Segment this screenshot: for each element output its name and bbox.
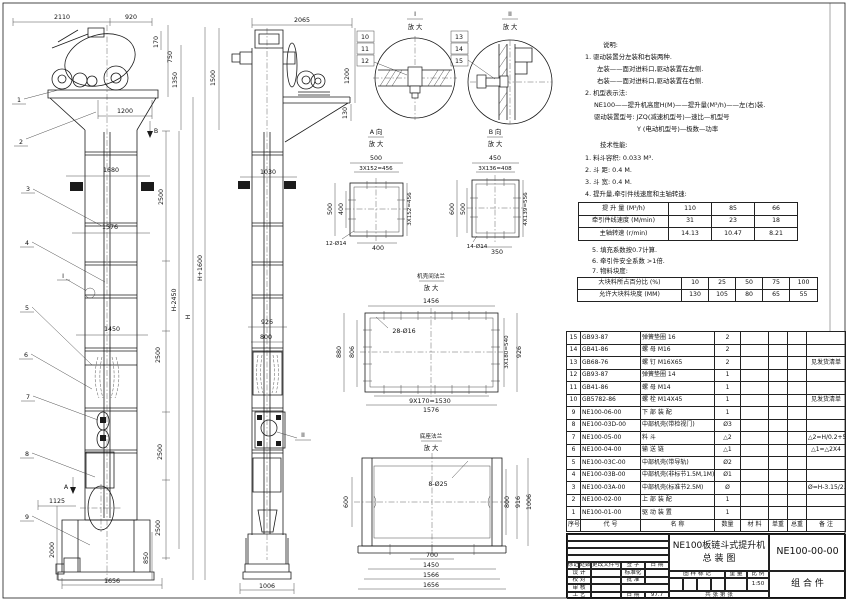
part-leader: 11: [361, 46, 369, 53]
bom-code: NE100-03B-00: [581, 469, 641, 482]
detail-title: A 向: [370, 127, 383, 136]
part-leader: 14: [455, 46, 463, 53]
bom-row: 3NE100-03A-00中部机壳(标准节2.5M)ØØ=H-3.15/2.5: [567, 482, 846, 495]
bom-code: NE100-06-00: [581, 407, 641, 420]
bom-cell: [741, 369, 769, 382]
note-line: NE100——提升机高度H(M)——提升量(M³/h)——左(右)装.: [594, 102, 765, 108]
revision-row: [567, 555, 669, 562]
note-line: 左装——面对进料口,驱动装置在左侧.: [597, 66, 703, 72]
bom-header: 备 注: [807, 519, 846, 532]
bom-row: 2NE100-02-00上 部 装 配1: [567, 494, 846, 507]
bom-cell: [769, 332, 788, 345]
dim-label: 1500: [210, 70, 217, 86]
rev-header-sign: 签 字: [621, 562, 645, 569]
capacity-spec-table: 提 升 量 (M³/h) 110 85 66 牵引件线速度 (M/min) 31…: [578, 202, 798, 241]
bom-code: GB41-86: [581, 382, 641, 395]
bom-remark: [807, 332, 846, 345]
detail-casing-flange: 机壳间法兰 放 大 1456 28-Ø16 880 806 3X180=540 …: [336, 272, 523, 414]
bom-qty: Ø: [715, 482, 741, 495]
dim-label: 1200: [117, 108, 133, 115]
dim-label: 170: [153, 36, 160, 48]
bom-cell: [788, 469, 807, 482]
detail-callout-label: I: [62, 273, 64, 280]
spec-label: 提 升 量 (M³/h): [579, 203, 669, 216]
drawing-sheet: 2110 920 170 750 1350 1500 1200 B 1680 2…: [0, 0, 850, 609]
tech-title: 技术性能:: [600, 142, 628, 148]
part-leader: 13: [455, 34, 463, 41]
part-leader: 7: [26, 394, 30, 401]
part-leader: 15: [455, 58, 463, 65]
bom-cell: [741, 357, 769, 370]
dim-label: 3X152=456: [359, 166, 393, 172]
lump-value: 10: [682, 278, 709, 290]
dim-label: 3X136=408: [478, 166, 512, 172]
bom-code: GB5782-86: [581, 394, 641, 407]
bom-cell: [741, 482, 769, 495]
bom-no: 11: [567, 382, 581, 395]
tech-line: 3. 斗 宽: 0.4 M.: [585, 179, 632, 185]
bom-code: NE100-03A-00: [581, 482, 641, 495]
bom-cell: [788, 419, 807, 432]
dim-label: 806: [349, 346, 356, 358]
bom-remark: 见发货清单: [807, 394, 846, 407]
bom-code: NE100-05-00: [581, 432, 641, 445]
dim-label: 8-Ø25: [428, 480, 447, 488]
bom-row: 8NE100-03D-00中部机壳(带检视门)Ø3: [567, 419, 846, 432]
dim-label: 700: [426, 552, 438, 559]
bom-row: 9NE100-06-00下 部 装 配1: [567, 407, 846, 420]
detail-callout-label: II: [301, 432, 305, 439]
dim-label: 1656: [423, 582, 439, 589]
bom-code: GB93-87: [581, 369, 641, 382]
bom-cell: [788, 394, 807, 407]
detail-view-i: I 放 大 10 11 12: [357, 11, 457, 120]
bom-row: 1NE100-01-00驱 动 装 置1: [567, 507, 846, 520]
bom-code: NE100-04-00: [581, 444, 641, 457]
drawing-title: NE100板链斗式提升机 总 装 图: [669, 534, 769, 571]
bom-cell: [769, 494, 788, 507]
drawing-title-line2: 总 装 图: [703, 553, 736, 566]
detail-subtitle: 放 大: [424, 443, 439, 452]
dim-label: 9X170=1530: [409, 398, 451, 405]
dim-label: 600: [449, 203, 456, 215]
bom-cell: [788, 357, 807, 370]
bom-cell: [741, 457, 769, 470]
bom-cell: [741, 469, 769, 482]
note-line: 驱动装置型号: JZQ(减速机型号)—速比—机型号: [594, 114, 730, 120]
bom-cell: [788, 332, 807, 345]
bom-name: 螺 栓 M14X45: [641, 394, 715, 407]
dim-label: 400: [372, 245, 384, 252]
spec-value: 18: [755, 215, 798, 228]
bom-cell: [741, 382, 769, 395]
bom-remark: [807, 457, 846, 470]
bom-cell: [741, 394, 769, 407]
bom-code: NE100-01-00: [581, 507, 641, 520]
bom-header: 总重: [788, 519, 807, 532]
bom-header: 单重: [769, 519, 788, 532]
part-leader: 12: [361, 58, 369, 65]
dim-label: 2500: [157, 444, 164, 460]
spec-value: 66: [755, 203, 798, 216]
dim-label: H-2450: [171, 288, 178, 311]
sig-approve-label: 批 准: [621, 577, 645, 585]
bom-code: GB41-86: [581, 344, 641, 357]
lump-value: 55: [790, 290, 818, 302]
detail-subtitle: 放 大: [424, 283, 439, 292]
bom-cell: [769, 432, 788, 445]
bom-name: 螺 钉 M16X65: [641, 357, 715, 370]
dim-label: H+1600: [197, 255, 204, 281]
scale-header: 比 例: [747, 571, 769, 578]
dim-label: 500: [370, 155, 382, 162]
note-line: Y (电动机型号)—极数—功率: [637, 126, 718, 132]
sig-cell: [645, 577, 669, 585]
spec-value: 8.21: [755, 228, 798, 241]
dim-label: 1450: [104, 326, 120, 333]
bom-remark: [807, 469, 846, 482]
bom-remark: [807, 369, 846, 382]
dim-label: 12-Ø14: [326, 240, 347, 247]
bom-remark: Ø=H-3.15/2.5: [807, 482, 846, 495]
detail-base-flange: 底座法兰 放 大 8-Ø25 600 800 916 1006 700 1450…: [343, 432, 533, 589]
detail-subtitle: 放 大: [408, 22, 423, 31]
spec-value: 23: [712, 215, 755, 228]
bom-remark: [807, 507, 846, 520]
bom-no: 7: [567, 432, 581, 445]
bom-qty: 1: [715, 394, 741, 407]
rev-header-docno: 更改文件号: [591, 562, 621, 569]
bom-remark: [807, 494, 846, 507]
drawing-number: NE100-00-00: [769, 534, 846, 571]
bom-cell: [741, 419, 769, 432]
lump-label: 允许大块料块度 (MM): [578, 290, 682, 302]
lump-row: 允许大块料块度 (MM) 130 105 80 65 55: [578, 290, 818, 302]
bom-remark: [807, 382, 846, 395]
revision-row: [567, 534, 669, 541]
detail-title: II: [508, 11, 512, 18]
bom-qty: △1: [715, 444, 741, 457]
dim-label: 800: [260, 334, 272, 341]
spec-value: 85: [712, 203, 755, 216]
bom-row: 15GB93-87弹簧垫圈 162: [567, 332, 846, 345]
detail-subtitle: 放 大: [503, 22, 518, 31]
bill-of-materials: 15GB93-87弹簧垫圈 162 14GB41-86螺 母 M162 13GB…: [566, 331, 846, 532]
bom-qty: 2: [715, 332, 741, 345]
part-leader: 10: [361, 34, 369, 41]
bom-cell: [741, 444, 769, 457]
stamp-header: 图 样 标 记: [669, 571, 725, 578]
title-block: 标记 处数 更改文件号 签 字 日 期 设 计 标准化 校 对 批 准 审 核 …: [566, 533, 845, 598]
bom-name: 螺 母 M14: [641, 382, 715, 395]
dim-label: 1006: [259, 583, 275, 590]
bom-qty: Ø3: [715, 419, 741, 432]
bom-name: 输 送 链: [641, 444, 715, 457]
bom-name: 料 斗: [641, 432, 715, 445]
lump-size-table: 大块料所占百分比 (%) 10 25 50 75 100 允许大块料块度 (MM…: [577, 277, 818, 302]
dim-label: H: [185, 314, 192, 319]
dim-label: 920: [125, 14, 137, 21]
sig-audit-label: 审 核: [567, 584, 591, 592]
bom-cell: [769, 394, 788, 407]
sig-cell: [591, 569, 621, 577]
lump-value: 100: [790, 278, 818, 290]
note-line: 1. 驱动装置分左装和右装两种.: [585, 54, 672, 60]
dim-label: 1656: [104, 578, 120, 585]
part-leader: 6: [24, 352, 28, 359]
bom-no: 9: [567, 407, 581, 420]
bom-cell: [741, 432, 769, 445]
bom-cell: [788, 457, 807, 470]
dim-label: 4X139=556: [523, 192, 529, 226]
dim-label: 1566: [423, 572, 439, 579]
stamp-box: [683, 578, 697, 591]
sheet-info: 共 张 第 张: [669, 591, 769, 599]
bom-qty: △2: [715, 432, 741, 445]
bom-cell: [741, 332, 769, 345]
bom-no: 15: [567, 332, 581, 345]
bom-qty: 1: [715, 369, 741, 382]
sig-check-label: 校 对: [567, 577, 591, 585]
sig-cell: [621, 584, 669, 592]
bom-cell: [769, 344, 788, 357]
bom-name: 弹簧垫圈 16: [641, 332, 715, 345]
spec-row: 牵引件线速度 (M/min) 31 23 18: [579, 215, 798, 228]
bom-remark: [807, 419, 846, 432]
sig-design-label: 设 计: [567, 569, 591, 577]
lump-row: 大块料所占百分比 (%) 10 25 50 75 100: [578, 278, 818, 290]
bom-no: 13: [567, 357, 581, 370]
bom-remark: 见发货清单: [807, 357, 846, 370]
dim-label: 1006: [526, 494, 533, 510]
detail-view-b: B 向 放 大 450 3X136=408 600 500 4X139=556 …: [449, 127, 529, 256]
bom-cell: [788, 444, 807, 457]
bom-remark: △2=H/0.2+5.75: [807, 432, 846, 445]
sig-process-label: 工 艺: [567, 592, 591, 600]
bom-cell: [769, 444, 788, 457]
lump-value: 50: [736, 278, 763, 290]
bom-cell: [788, 407, 807, 420]
tech-line: 4. 提升量,牵引件线速度和主轴转速:: [585, 191, 687, 197]
bom-cell: [788, 494, 807, 507]
bom-row: 10GB5782-86螺 栓 M14X451见发货清单: [567, 394, 846, 407]
dim-label: 400: [338, 203, 345, 215]
bom-name: 中部机壳(带导轨): [641, 457, 715, 470]
sig-cell: [591, 577, 621, 585]
spec-value: 10.47: [712, 228, 755, 241]
bom-code: NE100-03D-00: [581, 419, 641, 432]
bom-no: 5: [567, 457, 581, 470]
sig-cell: [645, 569, 669, 577]
bom-row: 14GB41-86螺 母 M162: [567, 344, 846, 357]
bom-cell: [769, 469, 788, 482]
front-view-dimension-labels: 2110 920 170 750 1350 1500 1200 B 1680 2…: [17, 14, 217, 585]
bom-remark: [807, 407, 846, 420]
dim-label: 1456: [423, 298, 439, 305]
bom-row: 7NE100-05-00料 斗△2△2=H/0.2+5.75: [567, 432, 846, 445]
bom-qty: 1: [715, 507, 741, 520]
dim-label: 3X152=456: [407, 192, 413, 226]
bom-name: 螺 母 M16: [641, 344, 715, 357]
detail-subtitle: 放 大: [488, 139, 503, 148]
part-leader: 3: [26, 186, 30, 193]
detail-title: B 向: [489, 127, 502, 136]
rev-header-date: 日 期: [645, 562, 669, 569]
dim-label: 2065: [294, 17, 310, 24]
bom-no: 12: [567, 369, 581, 382]
spec-row: 主轴转速 (r/min) 14.13 10.47 8.21: [579, 228, 798, 241]
bom-code: NE100-02-00: [581, 494, 641, 507]
side-view-dimension-lines: [240, 18, 355, 594]
lump-value: 65: [763, 290, 790, 302]
dim-label: 2500: [158, 189, 165, 205]
bom-cell: [769, 357, 788, 370]
bom-cell: [769, 457, 788, 470]
bom-qty: 2: [715, 357, 741, 370]
dim-label: 916: [515, 496, 522, 508]
dim-label: 880: [336, 346, 343, 358]
detail-title: I: [414, 11, 416, 18]
dim-label: 450: [489, 155, 501, 162]
dim-label: 1030: [260, 169, 276, 176]
lump-value: 80: [736, 290, 763, 302]
bom-qty: 1: [715, 494, 741, 507]
bom-row: 4NE100-03B-00中部机壳(非标节1.5M,1M)Ø1: [567, 469, 846, 482]
dim-label: 600: [343, 496, 350, 508]
lump-value: 25: [709, 278, 736, 290]
bom-cell: [769, 419, 788, 432]
date-value: 97.7: [645, 592, 669, 600]
spec-value: 110: [669, 203, 712, 216]
part-leader: 4: [25, 240, 29, 247]
bom-name: 弹簧垫圈 14: [641, 369, 715, 382]
bom-no: 8: [567, 419, 581, 432]
spec-label: 主轴转速 (r/min): [579, 228, 669, 241]
spec-value: 31: [669, 215, 712, 228]
bom-remark: △1=△2X4: [807, 444, 846, 457]
bom-qty: 1: [715, 407, 741, 420]
weight-value: [725, 578, 747, 591]
part-leader: 9: [25, 514, 29, 521]
lump-label: 大块料所占百分比 (%): [578, 278, 682, 290]
bom-no: 14: [567, 344, 581, 357]
bom-remark: [807, 344, 846, 357]
bom-row: 6NE100-04-00输 送 链△1△1=△2X4: [567, 444, 846, 457]
dim-label: 350: [491, 249, 503, 256]
dim-label: 926: [516, 346, 523, 358]
front-view-dimension-lines: [12, 18, 219, 589]
sig-cell: [591, 584, 621, 592]
tech-line: 1. 料斗容积: 0.033 M³.: [585, 155, 653, 161]
dim-label: 850: [143, 552, 150, 564]
bom-header: 名 称: [641, 519, 715, 532]
lump-value: 130: [682, 290, 709, 302]
bom-cell: [769, 407, 788, 420]
weight-header: 重 量: [725, 571, 747, 578]
dim-label: 926: [261, 319, 273, 326]
stamp-box: [697, 578, 711, 591]
dim-label: 800: [504, 496, 511, 508]
part-leader: 1: [17, 97, 21, 104]
bom-qty: Ø1: [715, 469, 741, 482]
detail-subtitle: 放 大: [369, 139, 384, 148]
sig-date-label: 日 期: [621, 592, 645, 600]
bom-header: 数量: [715, 519, 741, 532]
dim-label: 750: [167, 51, 174, 63]
bom-cell: [769, 507, 788, 520]
bom-no: 1: [567, 507, 581, 520]
lump-value: 75: [763, 278, 790, 290]
dim-label: 500: [327, 203, 334, 215]
dim-label: 2500: [155, 520, 162, 536]
bom-name: 上 部 装 配: [641, 494, 715, 507]
dim-label: 2110: [54, 14, 70, 21]
rev-header-count: 处数: [579, 562, 591, 569]
bom-qty: 2: [715, 344, 741, 357]
dim-label: 2500: [155, 347, 162, 363]
sig-cell: [591, 592, 621, 600]
dim-label: 1200: [344, 68, 351, 84]
scale-value: 1:50: [747, 578, 769, 591]
bom-header-row: 序号代 号名 称数量材 料单重总重备 注: [567, 519, 846, 532]
bom-row: 11GB41-86螺 母 M141: [567, 382, 846, 395]
note-line: 5. 填充系数按0.7计算.: [592, 247, 657, 253]
note-line: 7. 物料块度:: [592, 268, 628, 274]
bom-row: 12GB93-87弹簧垫圈 141: [567, 369, 846, 382]
bom-cell: [769, 482, 788, 495]
bom-code: NE100-03C-00: [581, 457, 641, 470]
dim-label: 500: [460, 203, 467, 215]
rev-header-mark: 标记: [567, 562, 579, 569]
bom-no: 3: [567, 482, 581, 495]
bom-no: 6: [567, 444, 581, 457]
bom-no: 10: [567, 394, 581, 407]
bom-cell: [788, 369, 807, 382]
dim-label: 1125: [49, 498, 65, 505]
note-line: 2. 机型表示法:: [585, 90, 627, 96]
bom-cell: [741, 407, 769, 420]
notes-title: 说明:: [603, 42, 618, 48]
bom-cell: [741, 344, 769, 357]
part-leader: 5: [25, 305, 29, 312]
bom-name: 下 部 装 配: [641, 407, 715, 420]
sig-std-label: 标准化: [621, 569, 645, 577]
bom-header: 材 料: [741, 519, 769, 532]
bom-cell: [741, 494, 769, 507]
tech-line: 2. 斗 距: 0.4 M.: [585, 167, 632, 173]
lump-value: 105: [709, 290, 736, 302]
bom-cell: [788, 507, 807, 520]
revision-row: [567, 548, 669, 555]
bom-name: 中部机壳(标准节2.5M): [641, 482, 715, 495]
detail-view-ii: II 放 大 13 14 15: [451, 11, 552, 124]
bom-cell: [769, 382, 788, 395]
dim-label: 1350: [172, 72, 179, 88]
note-line: 右装——面对进料口,驱动装置在右侧.: [597, 78, 703, 84]
spec-row: 提 升 量 (M³/h) 110 85 66: [579, 203, 798, 216]
bom-name: 中部机壳(非标节1.5M,1M): [641, 469, 715, 482]
dim-label: 1576: [102, 224, 118, 231]
bom-cell: [788, 432, 807, 445]
bom-header: 序号: [567, 519, 581, 532]
dim-label: 1576: [423, 407, 439, 414]
spec-label: 牵引件线速度 (M/min): [579, 215, 669, 228]
dim-label: 1450: [423, 562, 439, 569]
bom-no: 2: [567, 494, 581, 507]
bom-cell: [741, 507, 769, 520]
bom-cell: [769, 369, 788, 382]
bom-cell: [788, 344, 807, 357]
